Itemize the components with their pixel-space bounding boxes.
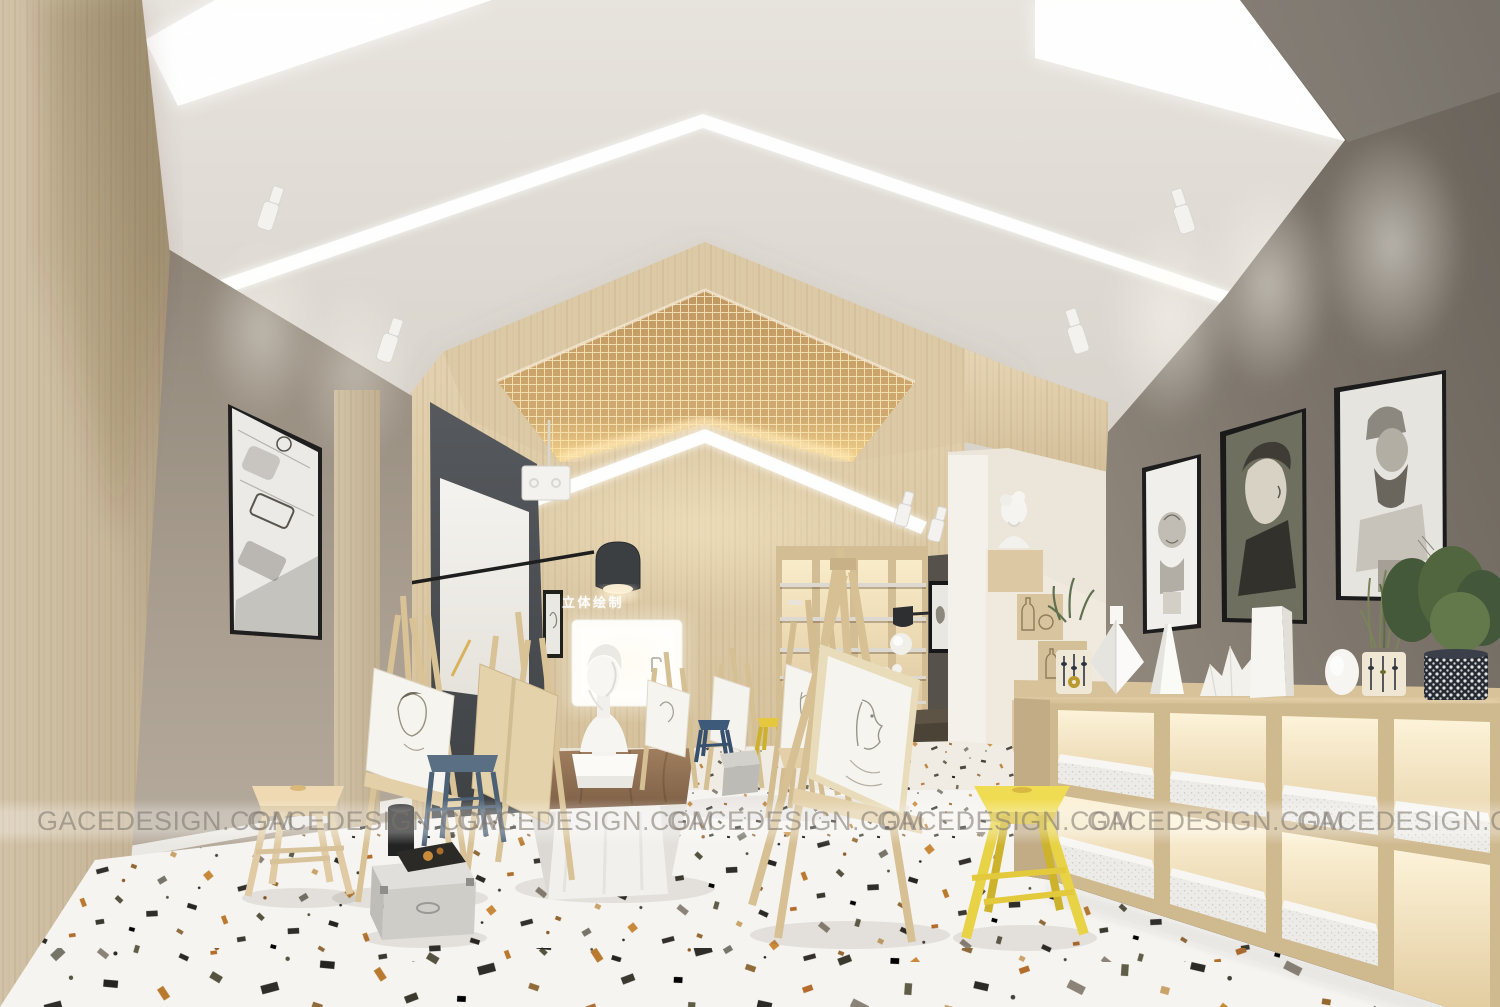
- watermark: GACEDESIGN.COM: [1297, 806, 1500, 837]
- studio-rendering: GACEDESIGN.COM GACEDESIGN.COM GACEDESIGN…: [0, 0, 1500, 1007]
- wall-sign-text: 立体绘制: [562, 592, 624, 611]
- render-canvas: [0, 0, 1500, 1007]
